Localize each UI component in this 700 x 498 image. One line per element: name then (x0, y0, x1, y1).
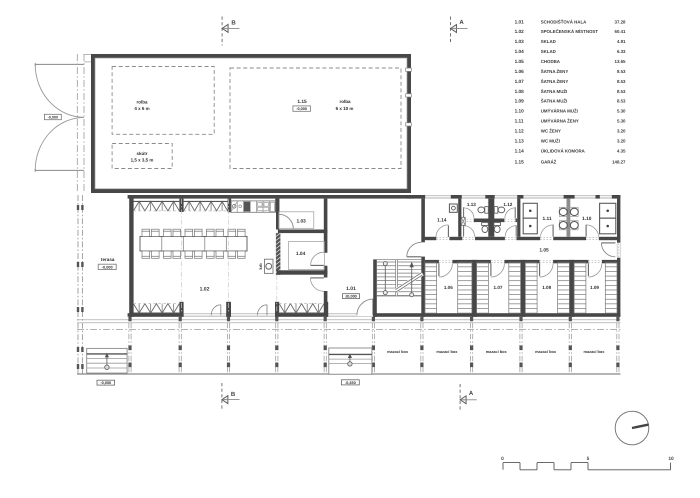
svg-text:1.01: 1.01 (346, 286, 356, 292)
svg-text:terasa: terasa (101, 257, 115, 262)
svg-text:60.41: 60.41 (615, 29, 627, 34)
svg-text:1.06: 1.06 (515, 69, 525, 74)
svg-text:UMÝVÁRNA MUŽI: UMÝVÁRNA MUŽI (541, 109, 578, 114)
svg-text:mazací box: mazací box (486, 349, 508, 354)
svg-text:1.06: 1.06 (444, 285, 453, 290)
svg-text:skútr: skútr (136, 151, 147, 156)
svg-text:A: A (469, 390, 474, 397)
svg-text:B: B (231, 391, 236, 398)
svg-text:37.28: 37.28 (615, 19, 627, 24)
svg-text:SKLAD: SKLAD (541, 39, 556, 44)
svg-text:1.14: 1.14 (437, 217, 447, 223)
svg-text:krb: krb (258, 263, 263, 270)
svg-text:1.05: 1.05 (515, 59, 525, 64)
svg-text:1.01: 1.01 (515, 19, 525, 24)
svg-text:1.03: 1.03 (297, 218, 307, 224)
svg-text:5: 5 (587, 456, 590, 462)
svg-text:A: A (459, 19, 464, 26)
svg-text:1.14: 1.14 (515, 148, 525, 153)
svg-text:1.12: 1.12 (503, 202, 512, 207)
svg-text:1.04: 1.04 (515, 49, 525, 54)
svg-text:8.53: 8.53 (617, 79, 626, 84)
svg-text:10: 10 (668, 456, 674, 462)
svg-text:rolba: rolba (339, 99, 350, 104)
svg-text:1.07: 1.07 (494, 285, 503, 290)
svg-text:5.30: 5.30 (617, 119, 626, 124)
svg-text:mazací box: mazací box (535, 349, 557, 354)
svg-text:1.11: 1.11 (543, 216, 552, 222)
svg-text:ŠATNA ŽENY: ŠATNA ŽENY (541, 69, 569, 74)
svg-text:1.11: 1.11 (515, 119, 524, 124)
svg-text:-0,450: -0,450 (345, 381, 356, 385)
svg-text:1.13: 1.13 (467, 202, 476, 207)
svg-text:4 x 6 m: 4 x 6 m (134, 106, 149, 111)
svg-text:148.27: 148.27 (612, 159, 626, 164)
svg-text:1.10: 1.10 (515, 109, 525, 114)
svg-text:5.30: 5.30 (617, 109, 626, 114)
svg-text:ŠATNA ŽENY: ŠATNA ŽENY (541, 79, 569, 84)
svg-text:6.33: 6.33 (617, 49, 626, 54)
svg-text:1.09: 1.09 (515, 99, 525, 104)
svg-text:1.09: 1.09 (590, 285, 599, 290)
svg-text:mazací box: mazací box (584, 349, 606, 354)
svg-text:-0,000: -0,000 (102, 266, 113, 270)
svg-text:3.20: 3.20 (617, 138, 626, 143)
svg-text:1.12: 1.12 (515, 129, 525, 134)
svg-text:1.07: 1.07 (515, 79, 525, 84)
svg-text:1.08: 1.08 (515, 89, 525, 94)
svg-text:SKLAD: SKLAD (541, 49, 556, 54)
svg-text:ŠATNA MUŽI: ŠATNA MUŽI (541, 89, 568, 94)
svg-text:1.15: 1.15 (515, 159, 525, 164)
svg-text:UMÝVÁRNA ŽENY: UMÝVÁRNA ŽENY (541, 119, 579, 124)
svg-text:8.53: 8.53 (617, 89, 626, 94)
svg-text:13.65: 13.65 (615, 59, 627, 64)
svg-text:B: B (231, 20, 236, 27)
svg-text:8.53: 8.53 (617, 99, 626, 104)
svg-text:rolba: rolba (136, 99, 147, 104)
svg-text:6 x 10 m: 6 x 10 m (336, 106, 354, 111)
svg-text:SPOLEČENSKÁ MÍSTNOST: SPOLEČENSKÁ MÍSTNOST (541, 29, 599, 34)
svg-text:-0,000: -0,000 (48, 116, 58, 120)
svg-text:1.08: 1.08 (542, 285, 551, 290)
svg-text:1.03: 1.03 (515, 39, 525, 44)
svg-text:mazací box: mazací box (436, 349, 458, 354)
svg-text:0: 0 (501, 456, 504, 462)
svg-text:±0,000: ±0,000 (345, 295, 357, 299)
svg-text:8.53: 8.53 (617, 69, 626, 74)
svg-text:ÚKLIDOVÁ KOMORA: ÚKLIDOVÁ KOMORA (541, 148, 586, 153)
svg-text:1.05: 1.05 (539, 247, 549, 253)
svg-text:WC MUŽI: WC MUŽI (541, 138, 560, 143)
svg-text:1.10: 1.10 (582, 216, 592, 222)
svg-text:ŠATNA MUŽI: ŠATNA MUŽI (541, 99, 568, 104)
svg-text:-0,600: -0,600 (100, 381, 111, 385)
svg-text:CHODBA: CHODBA (541, 59, 561, 64)
svg-text:1.15: 1.15 (297, 99, 307, 105)
svg-text:3.20: 3.20 (617, 129, 626, 134)
svg-text:1.13: 1.13 (515, 138, 525, 143)
svg-text:1,5 x 3,5 m: 1,5 x 3,5 m (131, 158, 154, 163)
svg-text:1.04: 1.04 (296, 251, 306, 257)
svg-text:4.35: 4.35 (617, 148, 626, 153)
svg-text:mazací box: mazací box (387, 349, 409, 354)
svg-text:4.81: 4.81 (617, 39, 626, 44)
svg-text:WC ŽENY: WC ŽENY (541, 129, 561, 134)
svg-text:1.02: 1.02 (200, 286, 210, 292)
svg-text:-0,000: -0,000 (296, 107, 307, 111)
svg-text:1.02: 1.02 (515, 29, 525, 34)
svg-text:GARÁŽ: GARÁŽ (541, 159, 557, 164)
svg-text:SCHODIŠŤOVÁ HALA: SCHODIŠŤOVÁ HALA (541, 19, 587, 24)
